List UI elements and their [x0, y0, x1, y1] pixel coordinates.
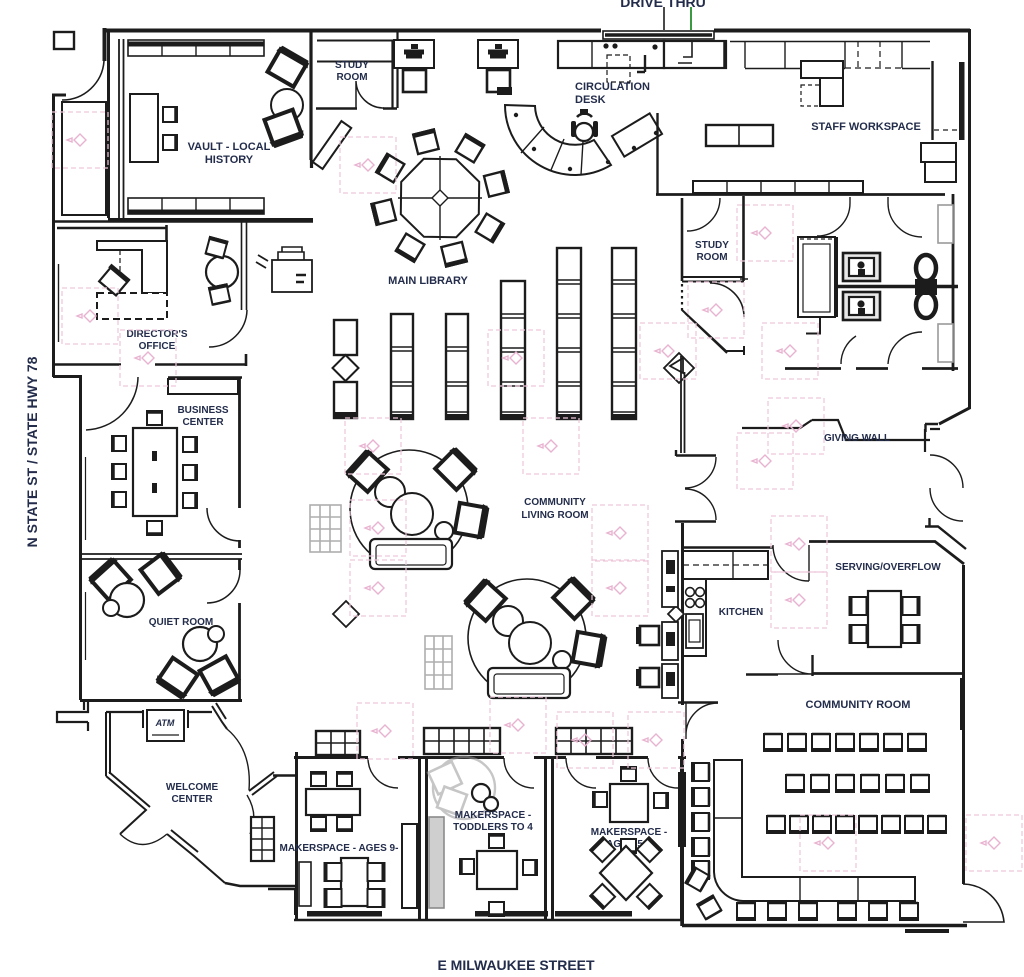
svg-text:CENTER: CENTER	[171, 794, 213, 805]
svg-text:COMMUNITY ROOM: COMMUNITY ROOM	[806, 699, 911, 711]
svg-text:ATM: ATM	[155, 718, 175, 728]
svg-text:ROOM: ROOM	[696, 252, 727, 263]
svg-text:VAULT - LOCAL: VAULT - LOCAL	[188, 141, 271, 153]
svg-text:MAIN LIBRARY: MAIN LIBRARY	[388, 275, 468, 287]
svg-text:ROOM: ROOM	[336, 72, 367, 83]
svg-text:COMMUNITY: COMMUNITY	[524, 497, 586, 508]
svg-text:N STATE ST / STATE HWY 78: N STATE ST / STATE HWY 78	[24, 356, 40, 547]
svg-text:BUSINESS: BUSINESS	[177, 405, 228, 416]
svg-text:WELCOME: WELCOME	[166, 782, 219, 793]
svg-text:E MILWAUKEE STREET: E MILWAUKEE STREET	[437, 957, 595, 973]
svg-text:CIRCULATION: CIRCULATION	[575, 81, 650, 93]
svg-text:CENTER: CENTER	[182, 417, 224, 428]
svg-text:MAKERSPACE -: MAKERSPACE -	[455, 810, 531, 821]
svg-text:STUDY: STUDY	[335, 60, 369, 71]
svg-text:MAKERSPACE - AGES 9-: MAKERSPACE - AGES 9-	[280, 843, 399, 854]
svg-text:STAFF WORKSPACE: STAFF WORKSPACE	[811, 121, 921, 133]
svg-text:KITCHEN: KITCHEN	[719, 607, 763, 618]
svg-text:SERVING/OVERFLOW: SERVING/OVERFLOW	[835, 562, 941, 573]
svg-text:HISTORY: HISTORY	[205, 154, 254, 166]
svg-text:GIVING WALL: GIVING WALL	[824, 433, 890, 444]
svg-text:DRIVE THRU: DRIVE THRU	[620, 0, 706, 10]
svg-text:DESK: DESK	[575, 94, 606, 106]
svg-text:DIRECTOR'S: DIRECTOR'S	[126, 329, 187, 340]
svg-text:LIVING ROOM: LIVING ROOM	[521, 510, 588, 521]
svg-text:OFFICE: OFFICE	[139, 341, 176, 352]
svg-text:TODDLERS TO 4: TODDLERS TO 4	[453, 822, 533, 833]
svg-text:STUDY: STUDY	[695, 240, 729, 251]
svg-text:MAKERSPACE -: MAKERSPACE -	[591, 827, 667, 838]
